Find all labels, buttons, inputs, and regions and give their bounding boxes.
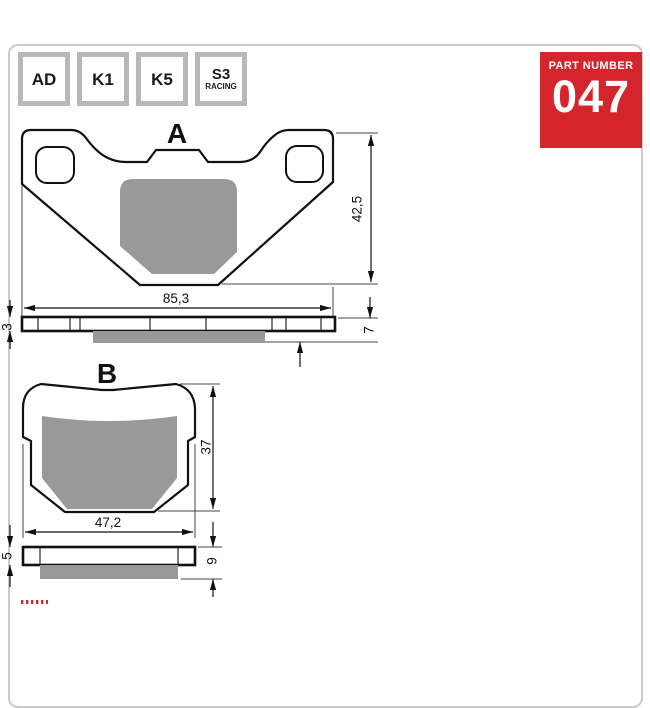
technical-drawing: A 42,5 85,3 3 7 B 37 47,2 xyxy=(0,0,650,650)
view-a-title: A xyxy=(167,118,187,149)
dim-a-plate-label: 3 xyxy=(0,323,15,331)
dim-a-total-label: 7 xyxy=(362,326,377,334)
dim-b-plate-label: 5 xyxy=(0,552,15,560)
pad-a-friction-material xyxy=(120,179,237,274)
dim-a-height-label: 42,5 xyxy=(350,196,365,222)
partial-red-watermark xyxy=(21,600,48,604)
dim-b-height-label: 37 xyxy=(199,439,214,454)
dim-a-width-label: 85,3 xyxy=(163,291,189,306)
pad-b-friction-material xyxy=(42,416,177,509)
dim-b-width-label: 47,2 xyxy=(95,515,121,530)
pad-a-hole-left xyxy=(36,147,74,183)
dim-b-total-label: 9 xyxy=(205,557,220,565)
pad-a-side-backplate xyxy=(22,317,335,331)
pad-a-hole-right xyxy=(286,146,323,182)
view-b-title: B xyxy=(97,358,117,389)
pad-b-side-backplate xyxy=(23,547,195,565)
pad-a-side-friction xyxy=(93,331,265,343)
pad-b-side-friction xyxy=(40,565,178,579)
